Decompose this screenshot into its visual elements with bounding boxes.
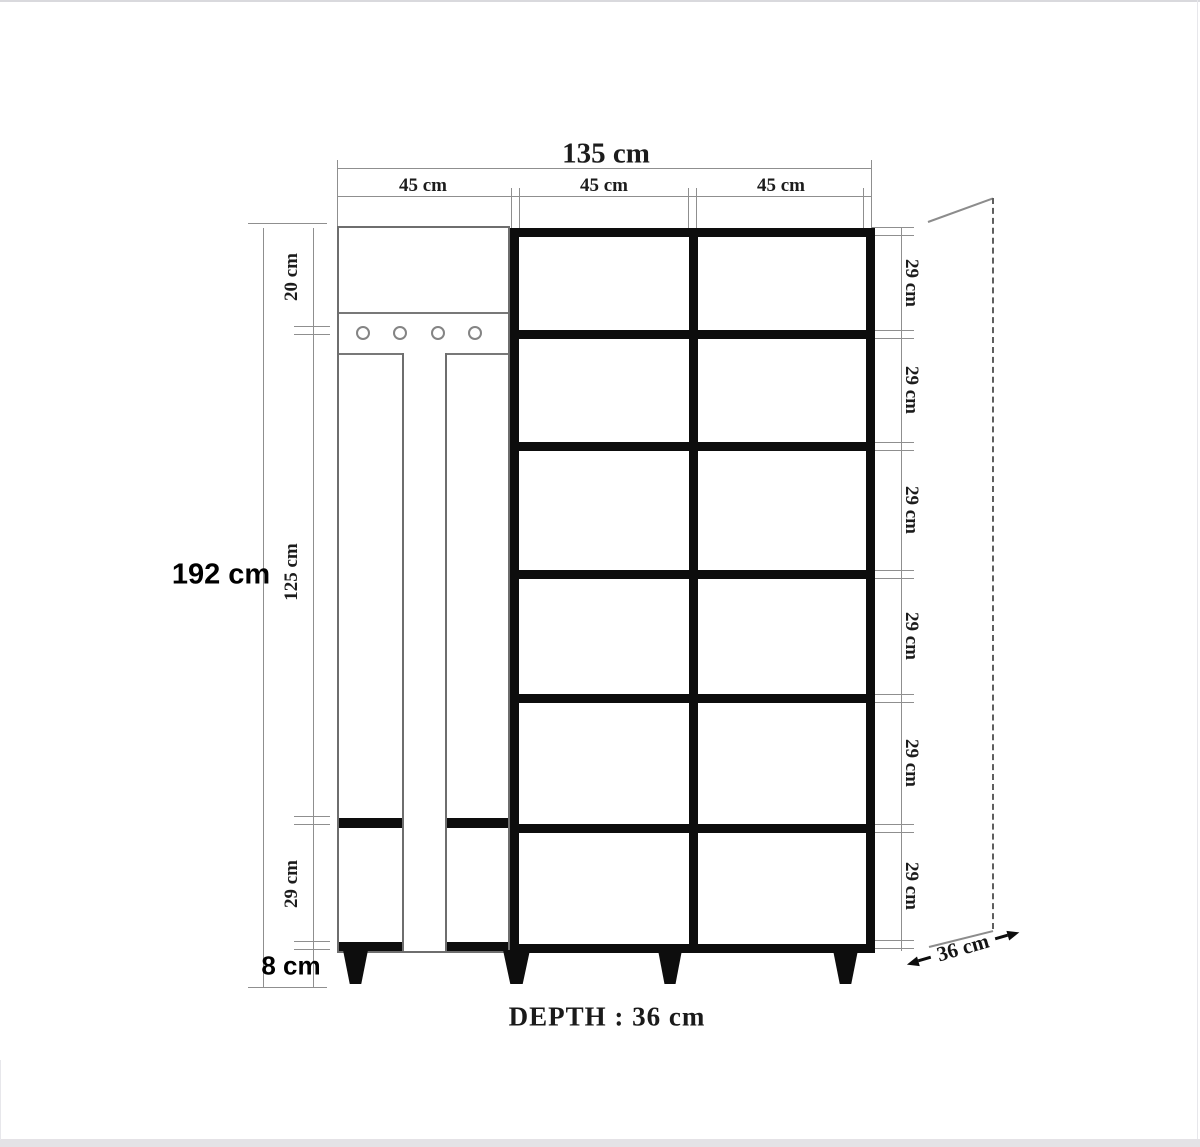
dimension-line-left-segments bbox=[313, 228, 314, 987]
right-tick-1b bbox=[872, 338, 914, 339]
grid-shelf-4 bbox=[519, 694, 866, 703]
page-edge-right bbox=[1197, 0, 1198, 1147]
left-bottom-cabinet-height-label: 29 cm bbox=[281, 860, 303, 908]
hook-knob-icon bbox=[356, 326, 370, 340]
right-tick-3b bbox=[872, 578, 914, 579]
dimension-tick-125cm-a bbox=[294, 816, 330, 817]
page-edge-left bbox=[0, 1060, 1, 1140]
right-tick-2b bbox=[872, 450, 914, 451]
depth-dimension: 36 cm bbox=[903, 920, 1022, 976]
leg-3 bbox=[658, 950, 682, 984]
page-edge-bottom bbox=[0, 1139, 1200, 1147]
page-edge-top bbox=[0, 0, 1200, 2]
depth-caption: DEPTH : 36 cm bbox=[509, 1002, 706, 1033]
grid-vertical-divider bbox=[689, 237, 698, 944]
right-tick-1a bbox=[872, 330, 914, 331]
right-tick-2a bbox=[872, 442, 914, 443]
dimension-tick-top-left-end bbox=[337, 160, 338, 228]
leg-4 bbox=[833, 950, 858, 984]
right-tick-3a bbox=[872, 570, 914, 571]
right-tick-0b bbox=[872, 235, 914, 236]
leg-1 bbox=[343, 950, 368, 984]
grid-shelf-2 bbox=[519, 442, 866, 451]
dimension-tick-left-top bbox=[248, 223, 327, 224]
dimension-tick-section-1a bbox=[511, 188, 512, 228]
section-width-label-3: 45 cm bbox=[757, 175, 805, 197]
total-width-label: 135 cm bbox=[562, 138, 650, 171]
dimension-line-right-rows bbox=[901, 228, 902, 951]
right-tick-5a bbox=[872, 824, 914, 825]
dimension-tick-section-2b bbox=[696, 188, 697, 228]
right-tick-0a bbox=[872, 227, 914, 228]
left-top-panel-height-label: 20 cm bbox=[281, 253, 303, 301]
row-height-label-5: 29 cm bbox=[900, 739, 922, 787]
row-height-label-6: 29 cm bbox=[900, 862, 922, 910]
right-tick-6b bbox=[872, 948, 914, 949]
depth-projection-dashed-line bbox=[992, 198, 994, 929]
dimension-tick-section-2a bbox=[688, 188, 689, 228]
dimension-tick-20cm-b bbox=[294, 334, 330, 335]
dimension-tick-125cm-b bbox=[294, 824, 330, 825]
left-mirror-height-label: 125 cm bbox=[281, 543, 303, 601]
grid-shelf-3 bbox=[519, 570, 866, 579]
leg-2 bbox=[503, 950, 530, 984]
row-height-label-4: 29 cm bbox=[900, 612, 922, 660]
left-panel bbox=[337, 226, 510, 953]
mirror-strip bbox=[402, 353, 447, 951]
right-tick-4b bbox=[872, 702, 914, 703]
grid-shelf-5 bbox=[519, 824, 866, 833]
dimension-tick-left-bottom bbox=[248, 987, 327, 988]
dimension-tick-20cm-a bbox=[294, 326, 330, 327]
section-width-label-1: 45 cm bbox=[399, 175, 447, 197]
hook-knob-icon bbox=[431, 326, 445, 340]
dimension-line-overall-height bbox=[263, 228, 264, 987]
row-height-label-2: 29 cm bbox=[900, 366, 922, 414]
leg-height-label: 8 cm bbox=[261, 951, 320, 982]
dimension-drawing-canvas: 135 cm 45 cm 45 cm 45 cm 20 cm 125 cm 29… bbox=[0, 0, 1200, 1147]
depth-dimension-label: 36 cm bbox=[934, 929, 992, 968]
depth-projection-top-line bbox=[928, 197, 994, 222]
row-height-label-1: 29 cm bbox=[900, 259, 922, 307]
dimension-line-total-width bbox=[337, 168, 872, 169]
depth-arrow-left-icon bbox=[905, 952, 932, 969]
hook-knob-icon bbox=[393, 326, 407, 340]
right-tick-6a bbox=[872, 940, 914, 941]
row-height-label-3: 29 cm bbox=[900, 486, 922, 534]
depth-arrow-right-icon bbox=[994, 927, 1021, 944]
hook-knob-icon bbox=[468, 326, 482, 340]
hook-rail-top-line bbox=[339, 312, 508, 314]
dimension-tick-section-1b bbox=[519, 188, 520, 228]
right-tick-4a bbox=[872, 694, 914, 695]
overall-height-label: 192 cm bbox=[172, 559, 270, 592]
shelf-grid bbox=[510, 228, 875, 953]
right-tick-5b bbox=[872, 832, 914, 833]
grid-shelf-1 bbox=[519, 330, 866, 339]
dimension-tick-top-right-end bbox=[871, 160, 872, 228]
section-width-label-2: 45 cm bbox=[580, 175, 628, 197]
dimension-tick-29cm-a bbox=[294, 941, 330, 942]
dimension-tick-top-right-end-2 bbox=[863, 188, 864, 228]
